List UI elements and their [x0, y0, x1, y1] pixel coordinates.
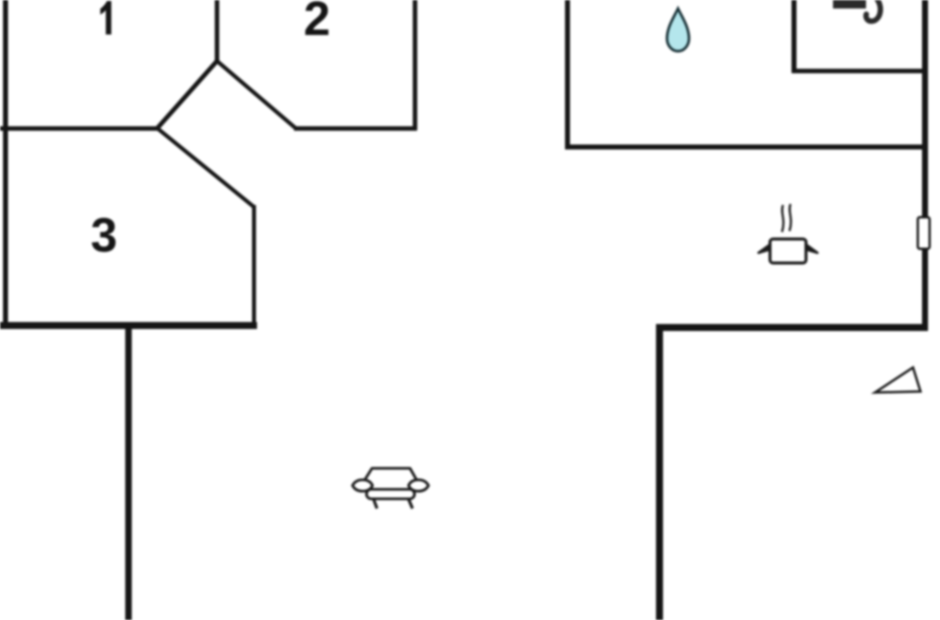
svg-text:3: 3: [91, 210, 118, 263]
svg-text:2: 2: [304, 0, 331, 46]
